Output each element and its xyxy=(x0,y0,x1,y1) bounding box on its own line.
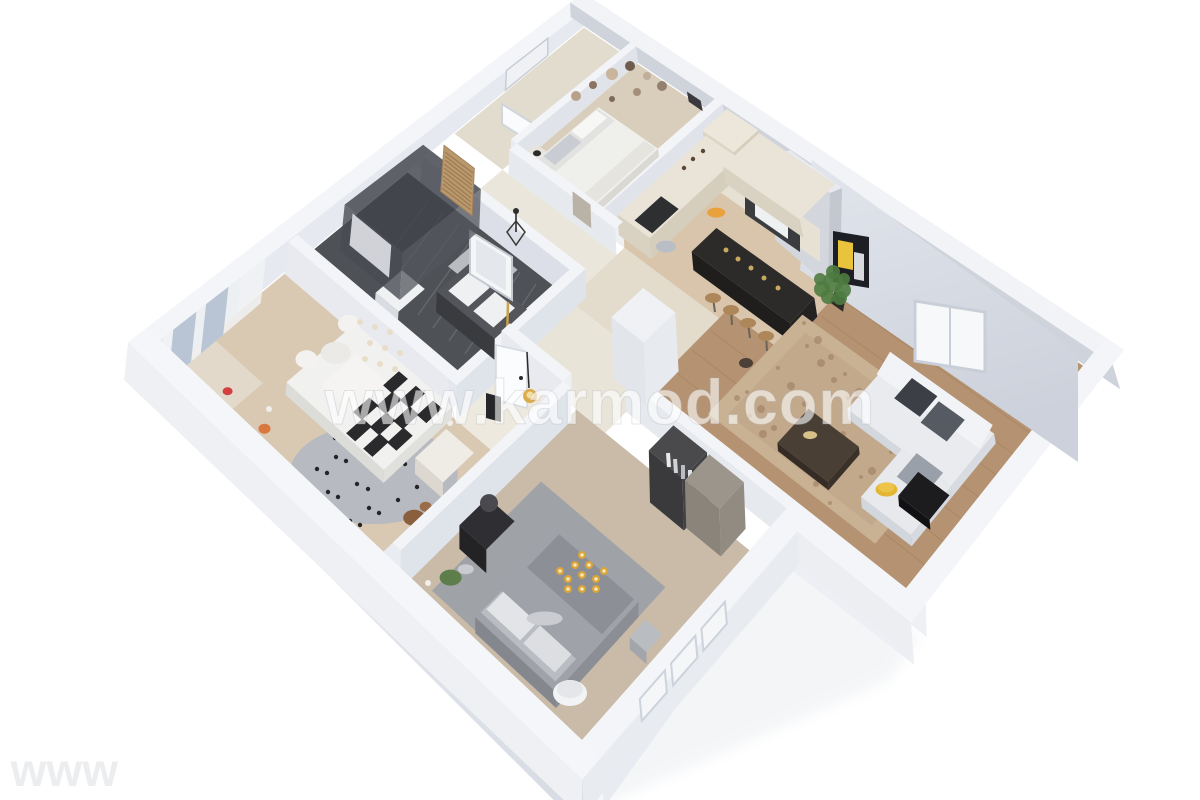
svg-text:www: www xyxy=(10,744,119,796)
svg-text:www.karmod.com: www.karmod.com xyxy=(324,368,876,438)
